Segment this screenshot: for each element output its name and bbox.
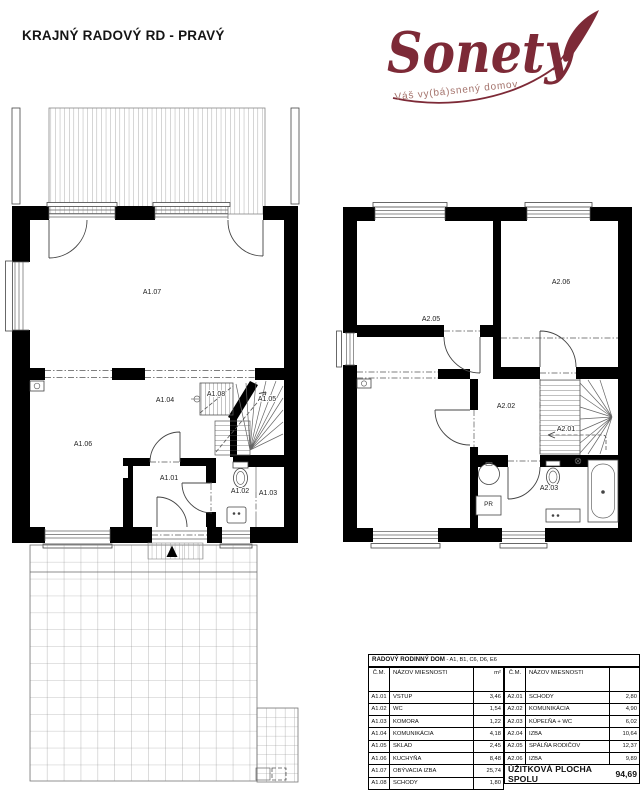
room-label-a203: A2.03 bbox=[540, 485, 558, 492]
wall-niche bbox=[123, 466, 128, 478]
header-room-id: Č.M. bbox=[369, 668, 390, 691]
cell-room-id: A2.04 bbox=[505, 728, 526, 739]
toilet-tank-icon bbox=[233, 462, 248, 468]
paved-terrace bbox=[30, 543, 298, 782]
stairs-upper bbox=[540, 379, 612, 455]
room-label-a206: A2.06 bbox=[552, 279, 570, 286]
cell-room-area: 4,90 bbox=[610, 704, 639, 715]
cell-room-area: 9,89 bbox=[610, 753, 639, 764]
header-room-name: NÁZOV MIESNOSTI bbox=[390, 668, 474, 691]
table-title-suffix: - A1, B1, C6, D6, E6 bbox=[445, 657, 497, 663]
cell-room-id: A2.02 bbox=[505, 704, 526, 715]
cell-room-id: A2.05 bbox=[505, 741, 526, 752]
cell-room-name: IZBA bbox=[526, 753, 610, 764]
cell-room-area: 4,18 bbox=[474, 728, 503, 739]
cell-room-id: A1.08 bbox=[369, 778, 390, 789]
cell-room-id: A1.01 bbox=[369, 692, 390, 703]
table-row: A1.07 OBÝVACIA IZBA 25,74 bbox=[369, 765, 503, 777]
cell-room-name: KOMORA bbox=[390, 716, 474, 727]
cell-room-name: WC bbox=[390, 704, 474, 715]
cell-room-area: 25,74 bbox=[474, 765, 503, 776]
room-label-a105: A1.05 bbox=[258, 396, 276, 403]
table-row: A1.08 SCHODY 1,80 bbox=[369, 778, 503, 789]
cell-room-area: 2,80 bbox=[610, 692, 639, 703]
meter-box-icon bbox=[30, 381, 44, 391]
walls-ground bbox=[12, 206, 298, 543]
total-value: 94,69 bbox=[615, 765, 639, 783]
cell-room-area: 1,22 bbox=[474, 716, 503, 727]
cell-room-name: KÚPEĽŇA + WC bbox=[526, 716, 610, 727]
cell-room-name: KOMUNIKÁCIA bbox=[526, 704, 610, 715]
header-area: m² bbox=[474, 668, 503, 691]
plan-ground-floor: A1.07 A1.04 A1.08 A1.05 A1.06 A1.01 A1.0… bbox=[6, 108, 300, 782]
room-label-a104: A1.04 bbox=[156, 397, 174, 404]
cell-room-area: 2,45 bbox=[474, 741, 503, 752]
cabinet-icon bbox=[546, 509, 580, 522]
cell-room-name: SPÁLŇA RODIČOV bbox=[526, 741, 610, 752]
table-header-row: Č.M. NÁZOV MIESNOSTI m² bbox=[369, 668, 503, 692]
table-title: RADOVÝ RODINNÝ DOM - A1, B1, C6, D6, E6 bbox=[368, 654, 640, 667]
cell-room-id: A1.04 bbox=[369, 728, 390, 739]
cell-room-name: OBÝVACIA IZBA bbox=[390, 765, 474, 776]
cell-room-area: 10,64 bbox=[610, 728, 639, 739]
cell-room-id: A1.03 bbox=[369, 716, 390, 727]
table-row: A2.02 KOMUNIKÁCIA 4,90 bbox=[505, 704, 639, 716]
table-row: A2.01 SCHODY 2,80 bbox=[505, 692, 639, 704]
table-row: A2.03 KÚPEĽŇA + WC 6,02 bbox=[505, 716, 639, 728]
room-label-a101: A1.01 bbox=[160, 475, 178, 482]
cell-room-name: SCHODY bbox=[526, 692, 610, 703]
cell-room-id: A1.05 bbox=[369, 741, 390, 752]
cell-room-name: VSTUP bbox=[390, 692, 474, 703]
cell-room-area: 1,54 bbox=[474, 704, 503, 715]
cell-room-id: A2.06 bbox=[505, 753, 526, 764]
cell-room-id: A1.02 bbox=[369, 704, 390, 715]
cell-room-id: A2.03 bbox=[505, 716, 526, 727]
deck-terrace bbox=[12, 108, 299, 214]
table-total-row: ÚŽITKOVÁ PLOCHA SPOLU 94,69 bbox=[505, 765, 639, 783]
plan-upper-floor: A2.05 A2.06 A2.02 A2.01 A2.03 PR bbox=[337, 203, 633, 549]
table-row: A2.04 IZBA 10,64 bbox=[505, 728, 639, 740]
header-area bbox=[610, 668, 639, 691]
table-title-main: RADOVÝ RODINNÝ DOM bbox=[372, 656, 445, 663]
cell-room-area: 6,02 bbox=[610, 716, 639, 727]
cell-room-name: KOMUNIKÁCIA bbox=[390, 728, 474, 739]
cell-room-area: 8,48 bbox=[474, 753, 503, 764]
cell-room-area: 3,46 bbox=[474, 692, 503, 703]
toilet-tank-icon bbox=[546, 461, 560, 466]
table-row: A1.06 KUCHYŇA 8,48 bbox=[369, 753, 503, 765]
room-label-a201: A2.01 bbox=[557, 426, 575, 433]
cell-room-id: A1.07 bbox=[369, 765, 390, 776]
table-upper-floor: Č.M. NÁZOV MIESNOSTI A2.01 SCHODY 2,80 A… bbox=[504, 667, 640, 785]
room-label-a202: A2.02 bbox=[497, 403, 515, 410]
meter-box-icon bbox=[357, 379, 371, 388]
cell-room-name: KUCHYŇA bbox=[390, 753, 474, 764]
cell-room-name: SCHODY bbox=[390, 778, 474, 789]
table-row: A1.04 KOMUNIKÁCIA 4,18 bbox=[369, 728, 503, 740]
room-label-a108: A1.08 bbox=[207, 391, 225, 398]
table-ground-floor: Č.M. NÁZOV MIESNOSTI m² A1.01 VSTUP 3,46… bbox=[368, 667, 504, 790]
room-label-a107: A1.07 bbox=[143, 289, 161, 296]
room-label-a102: A1.02 bbox=[231, 488, 249, 495]
header-room-name: NÁZOV MIESNOSTI bbox=[526, 668, 610, 691]
room-label-a103: A1.03 bbox=[259, 490, 277, 497]
cell-room-name: SKLAD bbox=[390, 741, 474, 752]
washbasin-icon bbox=[479, 464, 500, 485]
table-header-row: Č.M. NÁZOV MIESNOSTI bbox=[505, 668, 639, 692]
room-label-a205: A2.05 bbox=[422, 316, 440, 323]
table-row: A1.03 KOMORA 1,22 bbox=[369, 716, 503, 728]
cell-room-name: IZBA bbox=[526, 728, 610, 739]
total-label: ÚŽITKOVÁ PLOCHA SPOLU bbox=[505, 765, 615, 783]
cell-room-area: 12,37 bbox=[610, 741, 639, 752]
cell-room-id: A2.01 bbox=[505, 692, 526, 703]
sink-icon bbox=[227, 507, 246, 523]
header-room-id: Č.M. bbox=[505, 668, 526, 691]
cell-room-id: A1.06 bbox=[369, 753, 390, 764]
room-areas-table: RADOVÝ RODINNÝ DOM - A1, B1, C6, D6, E6 … bbox=[368, 654, 640, 790]
table-row: A2.05 SPÁLŇA RODIČOV 12,37 bbox=[505, 741, 639, 753]
label-pr: PR bbox=[484, 501, 493, 508]
table-row: A1.05 SKLAD 2,45 bbox=[369, 741, 503, 753]
table-row: A1.02 WC 1,54 bbox=[369, 704, 503, 716]
cell-room-area: 1,80 bbox=[474, 778, 503, 789]
doors-ground bbox=[49, 220, 263, 527]
room-label-a106: A1.06 bbox=[74, 441, 92, 448]
table-row: A1.01 VSTUP 3,46 bbox=[369, 692, 503, 704]
